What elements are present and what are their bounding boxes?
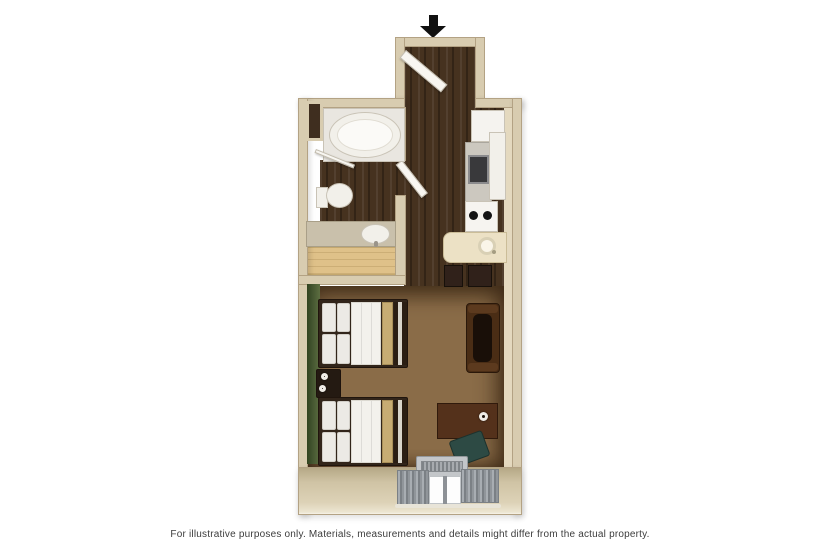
sofa-armrest (468, 363, 498, 371)
toilet (326, 183, 353, 208)
pillow (337, 303, 350, 332)
bathroom-partition-lower (395, 195, 406, 285)
window-mullion (443, 476, 447, 504)
stove-burner (483, 211, 492, 220)
pillow (322, 401, 336, 430)
microwave (468, 155, 489, 184)
floor-plan-image: For illustrative purposes only. Material… (0, 0, 820, 560)
stove-burner (469, 211, 478, 220)
pillow (322, 334, 336, 364)
linen-niche (306, 101, 323, 141)
bed-duvet (351, 400, 381, 463)
pillow (337, 401, 350, 430)
pillow (322, 432, 336, 462)
right-outer-wall (512, 98, 522, 515)
bed-footboard-trim (398, 400, 402, 463)
bed-runner (382, 400, 393, 463)
pillow (337, 432, 350, 462)
disclaimer-text: For illustrative purposes only. Material… (0, 529, 820, 540)
pillow (322, 303, 336, 332)
curtain (461, 469, 499, 503)
entry-hall-wood-floor (404, 46, 476, 108)
sofa-seat (473, 314, 492, 362)
bed-duvet (351, 302, 381, 365)
bed-footboard-trim (398, 302, 402, 365)
closet-floor (307, 247, 396, 275)
bathtub-inner (337, 119, 393, 151)
breakfast-bar-counter (443, 232, 507, 263)
vanity-faucet (374, 241, 378, 247)
nightstand (316, 369, 341, 398)
tall-cabinet (489, 132, 506, 200)
pillow (337, 334, 350, 364)
bed-lamp-icon (321, 373, 328, 380)
bed-lamp-icon (319, 385, 326, 392)
desk-lamp-icon (479, 412, 488, 421)
window-sill (395, 504, 501, 508)
kitchen-sink-drain (492, 250, 496, 254)
bed-runner (382, 302, 393, 365)
bar-stool (468, 265, 492, 287)
sofa-armrest (468, 305, 498, 313)
bar-stool (444, 265, 463, 287)
curtain (397, 470, 429, 505)
entry-top-wall (395, 37, 485, 47)
